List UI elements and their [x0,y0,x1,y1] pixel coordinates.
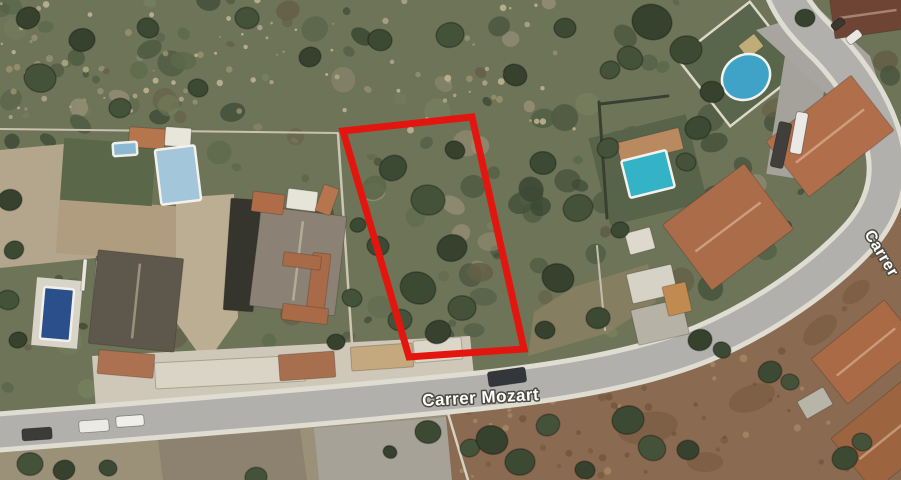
vehicle [116,415,145,428]
dirt-speckle [540,445,546,451]
rock-speckle [534,119,539,124]
rock-speckle [29,40,32,43]
tree [529,151,556,175]
rock-speckle [183,89,188,94]
rock-speckle [266,36,269,39]
dirt-speckle [605,393,612,400]
rock-speckle [6,66,13,73]
rock-speckle [331,49,334,52]
dirt-speckle [588,448,593,453]
dirt-speckle [787,409,790,412]
dirt-speckle [557,464,561,468]
rock-speckle [453,94,457,98]
rock-speckle [469,91,471,93]
dirt-speckle [702,415,707,420]
pool-left-deep [40,287,74,341]
rock-speckle [465,35,471,41]
rock-speckle [194,54,198,58]
map-viewport[interactable]: Carrer MozartCarrer [0,0,901,480]
rock-speckle [472,43,475,46]
dirt-speckle [826,421,830,425]
dirt-speckle [611,402,618,409]
rock-speckle [143,88,149,94]
rock-speckle [500,5,507,12]
rock-speckle [153,70,155,72]
rock-speckle [12,50,16,54]
rock-speckle [509,7,511,9]
rock-speckle [41,96,47,102]
dirt-speckle [794,424,801,431]
rock-speckle [443,98,447,102]
rock-speckle [11,88,17,94]
rock-speckle [103,97,105,99]
rock-speckle [69,106,72,109]
rock-speckle [243,45,247,49]
rock-speckle [553,51,558,56]
rock-speckle [397,89,401,93]
dirt-speckle [604,467,611,474]
rock-speckle [335,74,340,79]
rock-speckle [149,12,154,17]
rock-speckle [332,23,334,25]
rock-speckle [214,52,217,55]
rock-speckle [270,22,273,25]
rock-speckle [283,51,285,53]
rock-speckle [482,80,487,85]
rock-speckle [444,75,451,82]
rock-speckle [24,107,27,110]
rock-speckle [179,97,184,102]
rock-speckle [1,43,4,46]
rock-speckle [390,60,395,65]
rock-speckle [17,107,20,110]
dirt-speckle [800,386,804,390]
rock-speckle [496,96,503,103]
dirt-speckle [508,413,513,418]
tree [554,18,576,37]
rock-speckle [219,36,221,38]
rock-speckle [193,99,198,104]
rock-speckle [342,108,346,112]
tree [327,334,345,350]
rock-speckle [534,3,537,6]
dirt-speckle [710,362,715,367]
pool-left-large [155,145,201,204]
rock-speckle [407,127,414,134]
dirt-speckle [507,408,511,412]
rock-speckle [529,119,532,122]
dirt-speckle [740,355,748,363]
rock-speckle [498,78,505,85]
scrub-blob [464,323,485,337]
rock-speckle [325,73,328,76]
dirt-speckle [625,452,630,457]
rock-speckle [226,66,233,73]
rock-speckle [257,25,262,30]
dirt-speckle [645,403,653,411]
rock-speckle [125,29,132,36]
dirt-speckle [576,430,581,435]
roof-terracotta-b1 [278,351,336,381]
dirt-speckle [712,376,716,380]
rock-speckle [88,12,93,17]
rock-speckle [14,64,21,71]
dirt-speckle [723,436,727,440]
tree [234,7,259,30]
rock-speckle [82,98,86,102]
rock-speckle [540,118,546,124]
vehicle [79,419,110,433]
dirt-speckle [598,393,606,401]
rock-speckle [31,35,37,41]
dirt-speckle [716,447,720,451]
tree [448,295,477,321]
rock-speckle [97,88,103,94]
rock-speckle [46,55,53,62]
rock-speckle [163,51,169,57]
dirt-speckle [644,470,648,474]
dirt-speckle [486,461,491,466]
rock-speckle [276,54,278,56]
rock-speckle [251,77,256,82]
rock-speckle [269,80,273,84]
roof-white-s2 [286,188,318,212]
dirt-speckle [819,459,824,464]
rock-speckle [153,78,159,84]
rock-speckle [540,86,544,90]
rock-speckle [491,95,496,100]
vehicle [22,427,53,441]
rock-speckle [197,52,204,59]
dirt-speckle [473,419,478,424]
pool-left-small [113,142,138,157]
roof-white-top1 [164,127,191,148]
dirt-speckle [778,347,785,354]
rock-speckle [171,80,176,85]
dirt-speckle [565,450,572,457]
rock-speckle [241,33,244,36]
rock-speckle [485,67,489,71]
satellite-map[interactable]: Carrer MozartCarrer [0,0,901,480]
rock-speckle [62,60,69,67]
rock-speckle [524,22,530,28]
rock-speckle [415,72,420,77]
dirt-speckle [598,472,605,479]
dirt-speckle [599,454,606,461]
roof-terracotta-s2 [251,191,285,215]
tree [17,452,43,475]
rock-speckle [9,115,13,119]
rock-speckle [217,80,223,86]
rock-speckle [226,16,231,21]
dirt-speckle [471,475,474,478]
dirt-speckle [842,306,847,311]
dirt-speckle [459,469,464,474]
tree [677,440,700,460]
rock-speckle [466,76,473,83]
dirt-speckle [519,415,526,422]
rock-speckle [572,127,575,130]
rock-speckle [133,94,138,99]
dirt-speckle [641,385,647,391]
rock-speckle [83,67,89,73]
roof-terracotta-strip [97,350,155,379]
rock-speckle [295,29,298,32]
dirt-speckle [693,402,698,407]
dirt-speckle [777,395,780,398]
tree [504,448,535,476]
rock-speckle [236,108,242,114]
rock-speckle [43,1,50,8]
dirt-speckle [743,432,749,438]
tree [794,9,815,28]
rock-speckle [382,18,388,24]
